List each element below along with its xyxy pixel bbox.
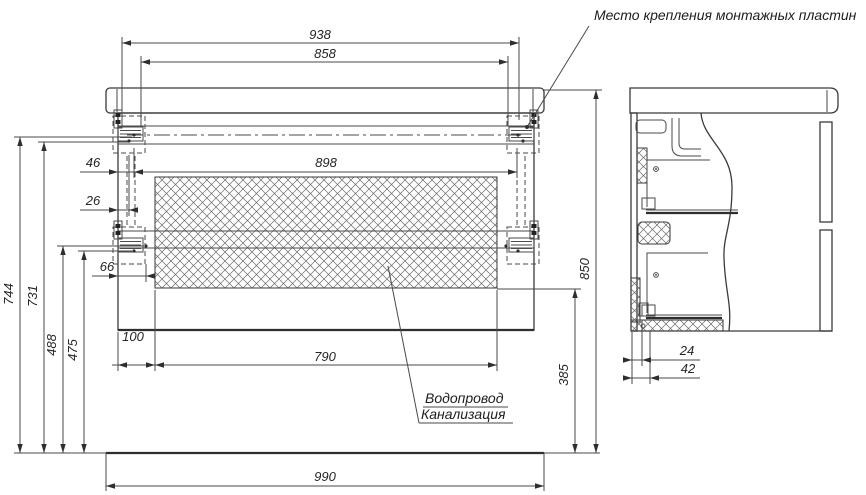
drawing-canvas: 938 858 898 46 26 66 100 790 990 744 731… [0,0,866,495]
side-view [630,88,838,331]
dim-475: 475 [65,338,80,360]
dim-938: 938 [309,27,331,42]
dim-385: 385 [556,363,571,385]
dim-24: 24 [679,343,694,358]
dim-744: 744 [1,283,16,305]
mid-wall-rail-section [638,222,670,244]
utilities-label-line2: Канализация [421,406,506,422]
service-zone-hatch [155,177,497,288]
dim-850: 850 [577,257,592,279]
mounting-plates-leader-dot [525,125,529,129]
utilities-leader-line [388,266,419,423]
mounting-plates-label: Место крепления монтажных пластин [594,7,857,23]
lower-drawer-front [820,230,832,331]
basin-underside [636,120,666,133]
mounting-plates-leader-line [527,26,589,127]
countertop-front [106,88,544,113]
upper-wall-rail-section [637,148,647,183]
dim-100: 100 [122,329,144,344]
dim-990: 990 [314,469,336,484]
dim-858: 858 [314,46,336,61]
lower-drawer-box [642,253,722,318]
dim-790: 790 [314,349,336,364]
dim-66: 66 [100,259,115,274]
upper-drawer-front [820,122,832,222]
upper-drawer-box [642,160,738,213]
countertop-side [630,88,838,113]
drain-pipe-outer [672,118,701,156]
dim-731: 731 [25,285,40,307]
installation-drawing-sheet: 938 858 898 46 26 66 100 790 990 744 731… [0,0,866,495]
dim-898: 898 [315,155,337,170]
dim-42: 42 [681,361,696,376]
dim-488: 488 [44,333,59,355]
utilities-label-line1: Водопровод [425,390,504,406]
interior-profile-curve [701,113,732,331]
drain-pipe-inner [679,118,701,149]
dim-46: 46 [86,155,101,170]
dim-26: 26 [85,193,101,208]
